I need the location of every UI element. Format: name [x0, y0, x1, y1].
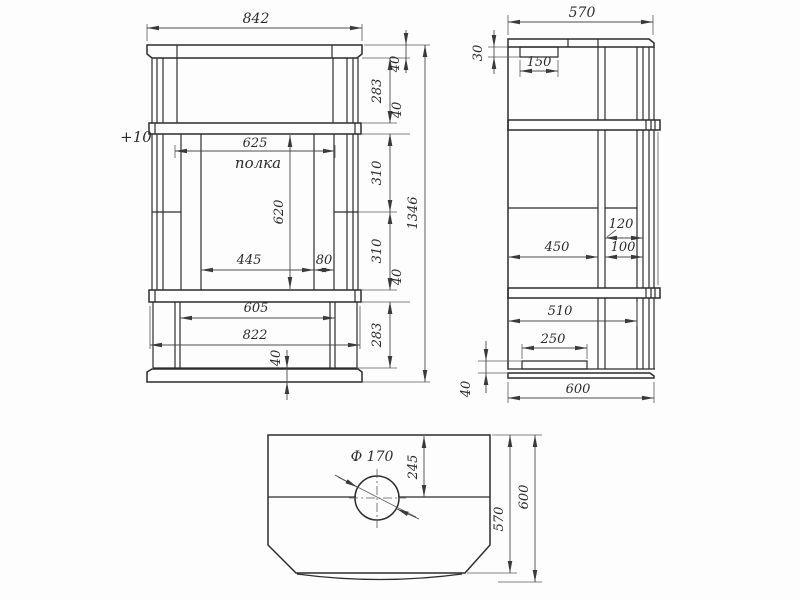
dim-opening-lower: 310 [370, 239, 385, 264]
dim-total-height: 1346 [406, 196, 421, 229]
dim-lower-section: 283 [370, 323, 385, 349]
side-shelf-band [508, 120, 660, 130]
dim-lower-depth: 510 [548, 304, 573, 319]
dim-top-inner-depth: 570 [492, 507, 507, 532]
side-view: 570 30 150 120 100 450 510 250 40 [459, 5, 660, 403]
side-back-legs [637, 47, 654, 369]
side-top-board-divisions [568, 39, 598, 47]
dim-lower-width-inner: 605 [244, 301, 269, 316]
dim-front-plinth-height: 40 [269, 350, 284, 368]
dim-top-outer-depth: 600 [517, 485, 532, 510]
dim-column-depth: 120 [609, 217, 634, 232]
dim-opening-upper: 310 [370, 161, 385, 186]
dim-lower-width-outer: 822 [243, 328, 268, 343]
label-shelf-note: +10 [120, 128, 152, 146]
side-lower-band [508, 288, 660, 298]
front-crown-divisions [177, 45, 332, 58]
technical-drawing-page: 842 625 полка +10 620 445 80 605 822 40 … [0, 0, 800, 600]
top-view-front-arc [297, 574, 462, 580]
dim-hole-diameter: Ф 170 [351, 449, 394, 465]
dim-band-top: 40 [390, 102, 405, 120]
front-view: 842 625 полка +10 620 445 80 605 822 40 … [120, 11, 430, 400]
front-shelf-band-caps [155, 123, 355, 134]
front-plinth [147, 369, 362, 382]
dim-bracket-width: 150 [527, 55, 552, 70]
side-plinth [508, 373, 654, 378]
side-top-board [508, 39, 654, 47]
dim-bracket-height: 30 [471, 45, 486, 62]
dim-column-width: 80 [316, 253, 333, 268]
front-shelf-band [149, 123, 361, 134]
dim-front-top-width: 842 [243, 11, 270, 27]
side-foot-block [522, 361, 587, 369]
dim-column-gap: 100 [611, 240, 636, 255]
flue-hole-centerlines [349, 469, 406, 528]
dim-band-bottom: 40 [390, 269, 405, 287]
dim-crown-height: 40 [388, 56, 403, 74]
top-view: Ф 170 245 570 600 [268, 435, 542, 582]
dim-side-top-depth: 570 [569, 5, 596, 21]
dim-side-plinth-height: 40 [459, 381, 474, 399]
dim-front-depth: 450 [544, 240, 570, 255]
dim-hole-offset: 245 [406, 455, 421, 481]
front-crown-board [147, 45, 362, 58]
dim-shelf-width: 625 [243, 136, 268, 151]
label-shelf: полка [235, 154, 281, 172]
dim-foot-width: 250 [540, 332, 566, 347]
dim-opening-height: 620 [272, 200, 287, 225]
fireplace-portal-drawing: 842 625 полка +10 620 445 80 605 822 40 … [0, 0, 800, 600]
dim-bottom-depth: 600 [566, 382, 591, 397]
dim-opening-width: 445 [236, 253, 262, 268]
front-upper-legs [152, 58, 358, 123]
dim-upper-section: 283 [370, 79, 385, 105]
